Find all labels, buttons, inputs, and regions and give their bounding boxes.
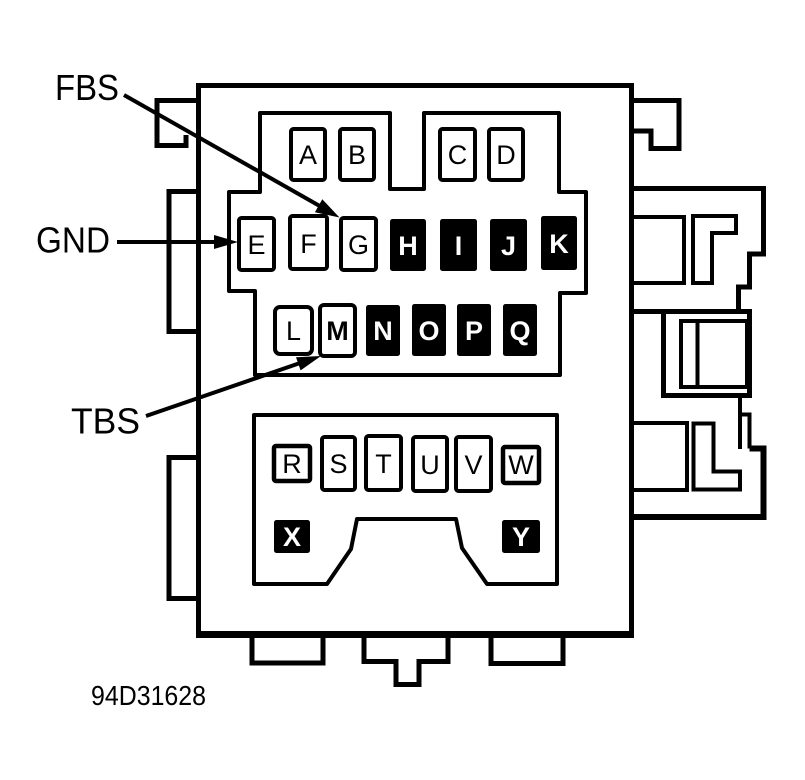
svg-text:F: F	[300, 229, 317, 259]
svg-text:C: C	[448, 140, 468, 170]
svg-text:P: P	[465, 316, 483, 346]
svg-text:S: S	[329, 449, 347, 479]
svg-text:94D31628: 94D31628	[91, 680, 206, 711]
svg-text:I: I	[455, 231, 463, 261]
svg-text:O: O	[418, 316, 439, 346]
svg-text:W: W	[508, 450, 534, 480]
svg-text:X: X	[283, 522, 301, 552]
svg-text:E: E	[247, 230, 265, 260]
svg-text:M: M	[326, 316, 349, 346]
svg-text:T: T	[375, 449, 392, 479]
svg-text:K: K	[549, 229, 569, 259]
svg-text:D: D	[496, 140, 516, 170]
svg-text:L: L	[286, 316, 301, 346]
svg-text:R: R	[282, 449, 302, 479]
svg-text:J: J	[501, 231, 516, 261]
svg-text:FBS: FBS	[55, 67, 119, 108]
svg-text:Y: Y	[512, 522, 530, 552]
svg-text:GND: GND	[36, 220, 110, 261]
svg-text:G: G	[348, 230, 369, 260]
svg-text:V: V	[464, 450, 482, 480]
svg-text:N: N	[373, 316, 393, 346]
svg-text:B: B	[348, 140, 366, 170]
svg-text:H: H	[398, 231, 418, 261]
svg-text:U: U	[420, 450, 440, 480]
svg-text:TBS: TBS	[71, 401, 140, 442]
svg-text:A: A	[299, 140, 317, 170]
svg-text:Q: Q	[509, 316, 530, 346]
